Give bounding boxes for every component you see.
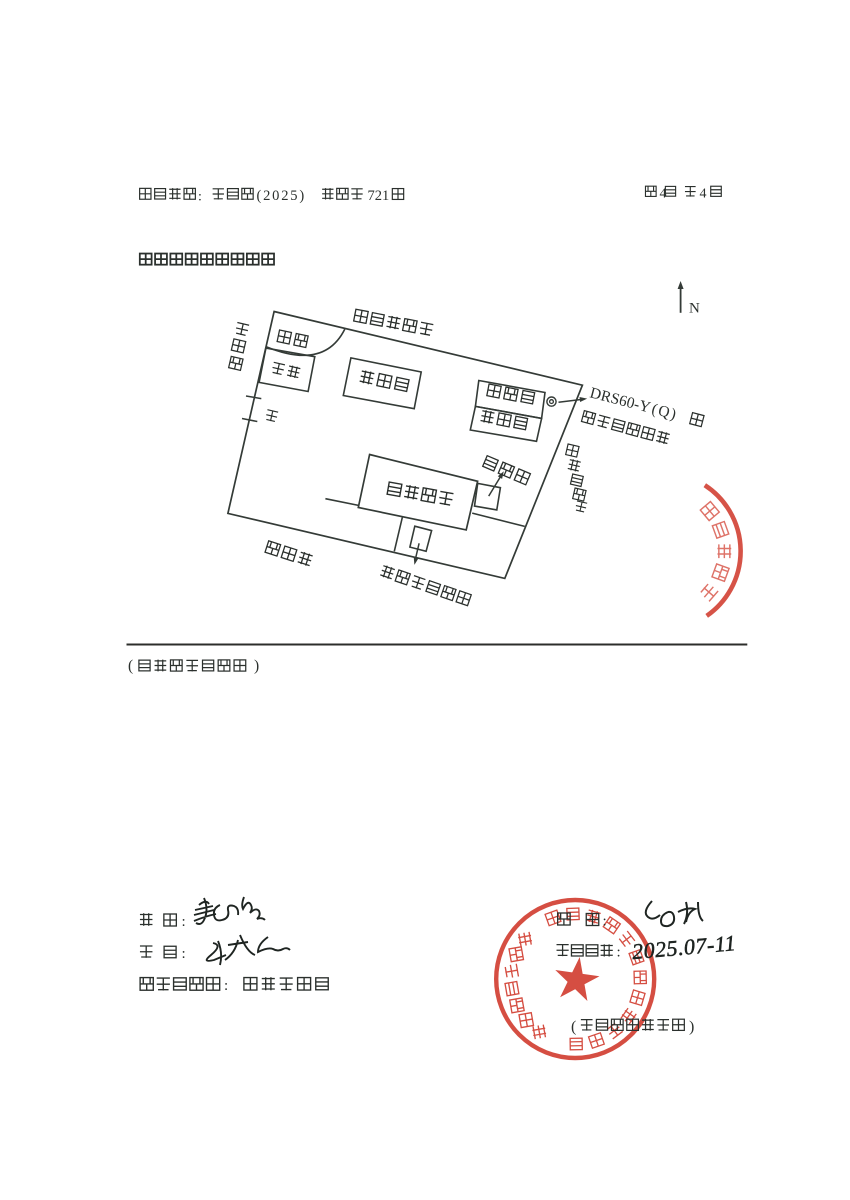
svg-text:(: (	[128, 658, 133, 675]
svg-text:): )	[254, 658, 259, 675]
svg-text::: :	[603, 914, 607, 930]
svg-text::: :	[198, 190, 202, 205]
svg-text::: :	[182, 946, 186, 962]
svg-text:(2025): (2025)	[257, 188, 306, 204]
svg-text:4: 4	[700, 186, 707, 201]
svg-text:N: N	[689, 301, 700, 317]
svg-text:(: (	[571, 1019, 576, 1036]
svg-text::: :	[182, 914, 186, 930]
svg-text::: :	[224, 978, 228, 994]
svg-text:721: 721	[368, 188, 390, 204]
svg-text:): )	[689, 1019, 694, 1036]
svg-text::: :	[617, 945, 621, 961]
